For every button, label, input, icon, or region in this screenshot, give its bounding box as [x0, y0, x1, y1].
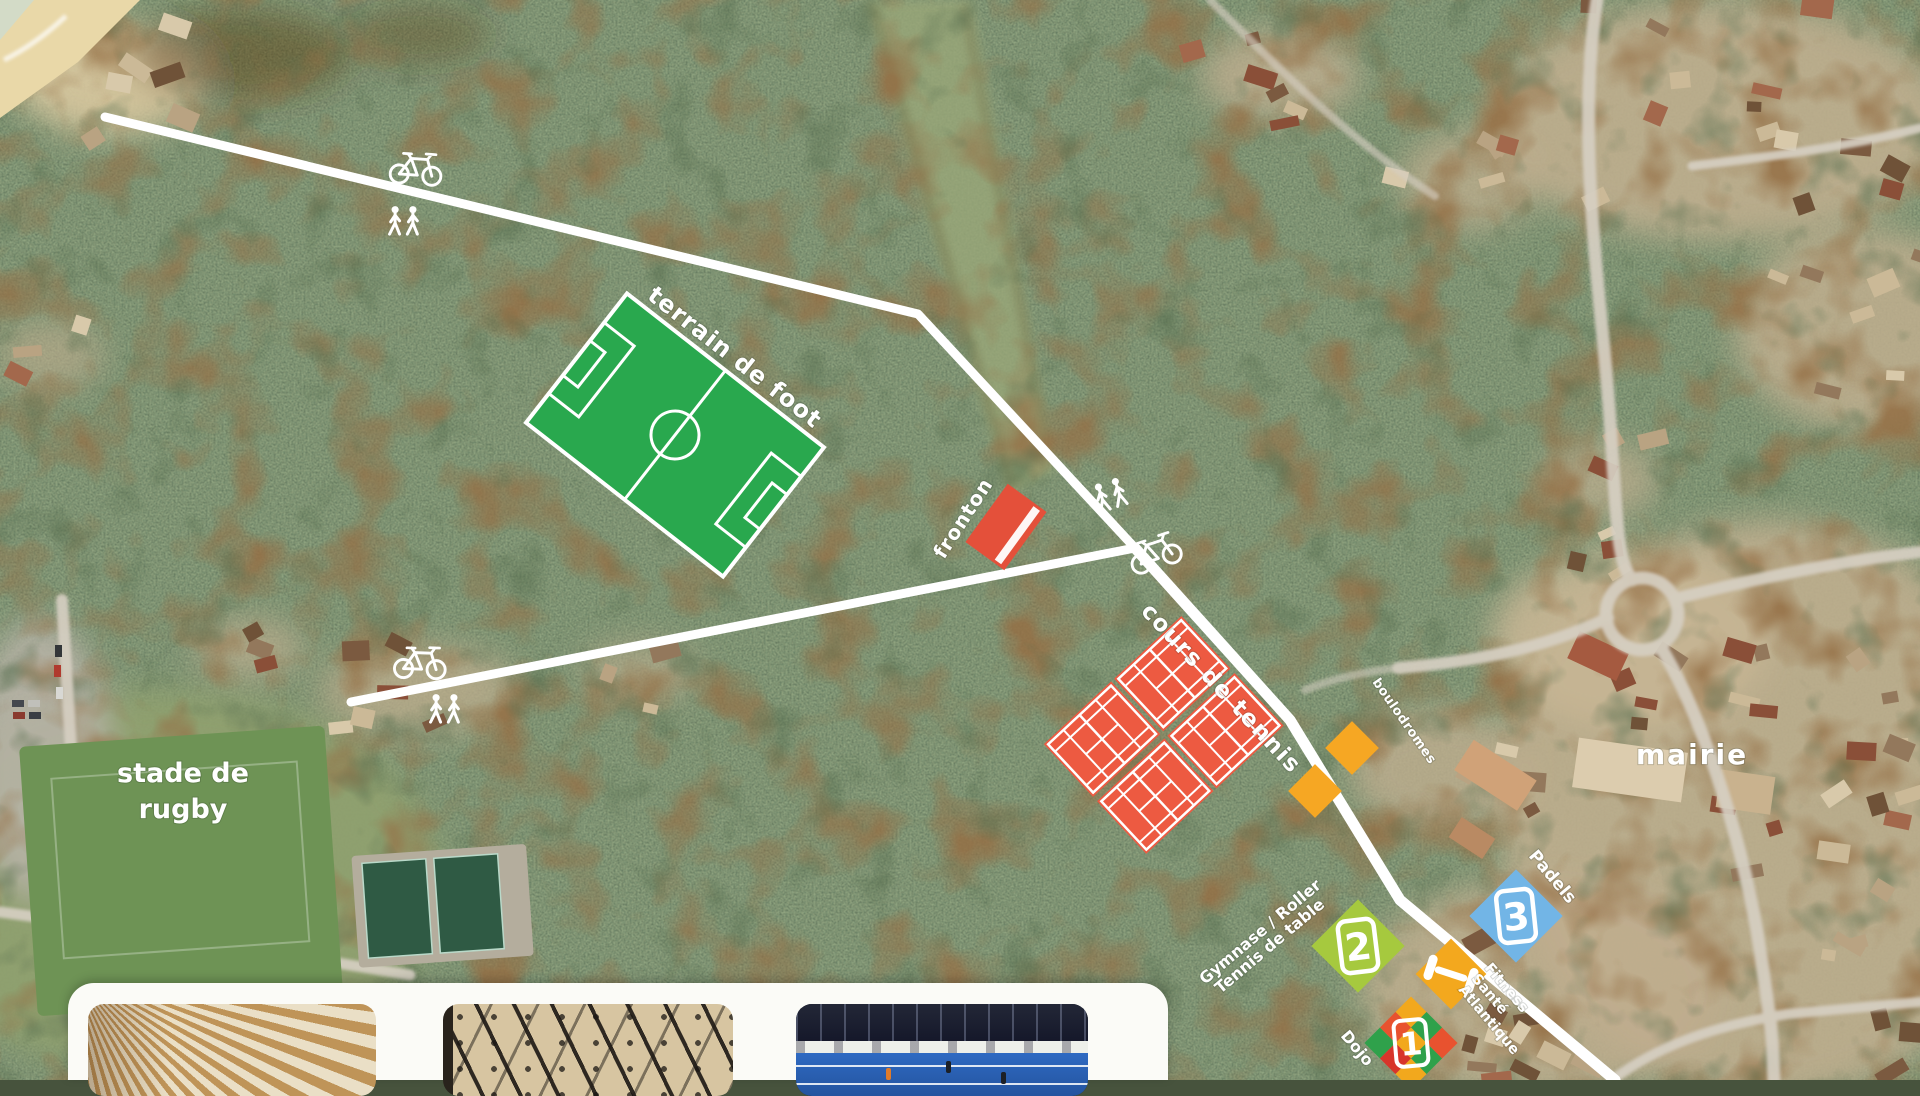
player-figure — [1001, 1072, 1006, 1084]
photo-panel — [68, 983, 1168, 1080]
label-mairie: mairie — [1636, 738, 1748, 771]
label-stade-de-rugby-line2: rugby — [139, 794, 228, 825]
building-roof — [1886, 370, 1905, 381]
municipal-tennis-courts — [351, 844, 533, 968]
building-roof — [1821, 948, 1836, 961]
building-roof — [1899, 1022, 1920, 1044]
aerial-map: terrain de foot fronton — [0, 0, 1920, 1080]
building-roof — [1846, 741, 1876, 761]
photo-indoor-padel-court — [796, 1004, 1088, 1096]
texture-layer — [796, 1041, 1088, 1053]
aerial-map-poster: terrain de foot fronton — [0, 0, 1920, 1080]
marker-3-number: 3 — [1501, 894, 1532, 941]
building-roof — [1749, 703, 1778, 718]
court-line — [796, 1083, 1088, 1085]
player-figure — [886, 1068, 891, 1080]
building-roof — [1669, 71, 1691, 90]
building-roof — [1774, 129, 1799, 151]
photo-gymnase-wood-ceiling — [88, 1004, 376, 1096]
marker-1-number: 1 — [1398, 1024, 1423, 1064]
building-roof — [1631, 717, 1649, 731]
building-roof — [1747, 101, 1762, 112]
texture-layer — [796, 1004, 1088, 1041]
court-line — [796, 1065, 1088, 1067]
marker-2-number: 2 — [1342, 924, 1374, 971]
building-roof — [342, 640, 370, 661]
photo-hall-interior-trusses — [443, 1004, 733, 1096]
label-stade-de-rugby-line1: stade de — [117, 758, 249, 789]
texture-layer — [796, 1053, 1088, 1096]
player-figure — [946, 1061, 951, 1073]
